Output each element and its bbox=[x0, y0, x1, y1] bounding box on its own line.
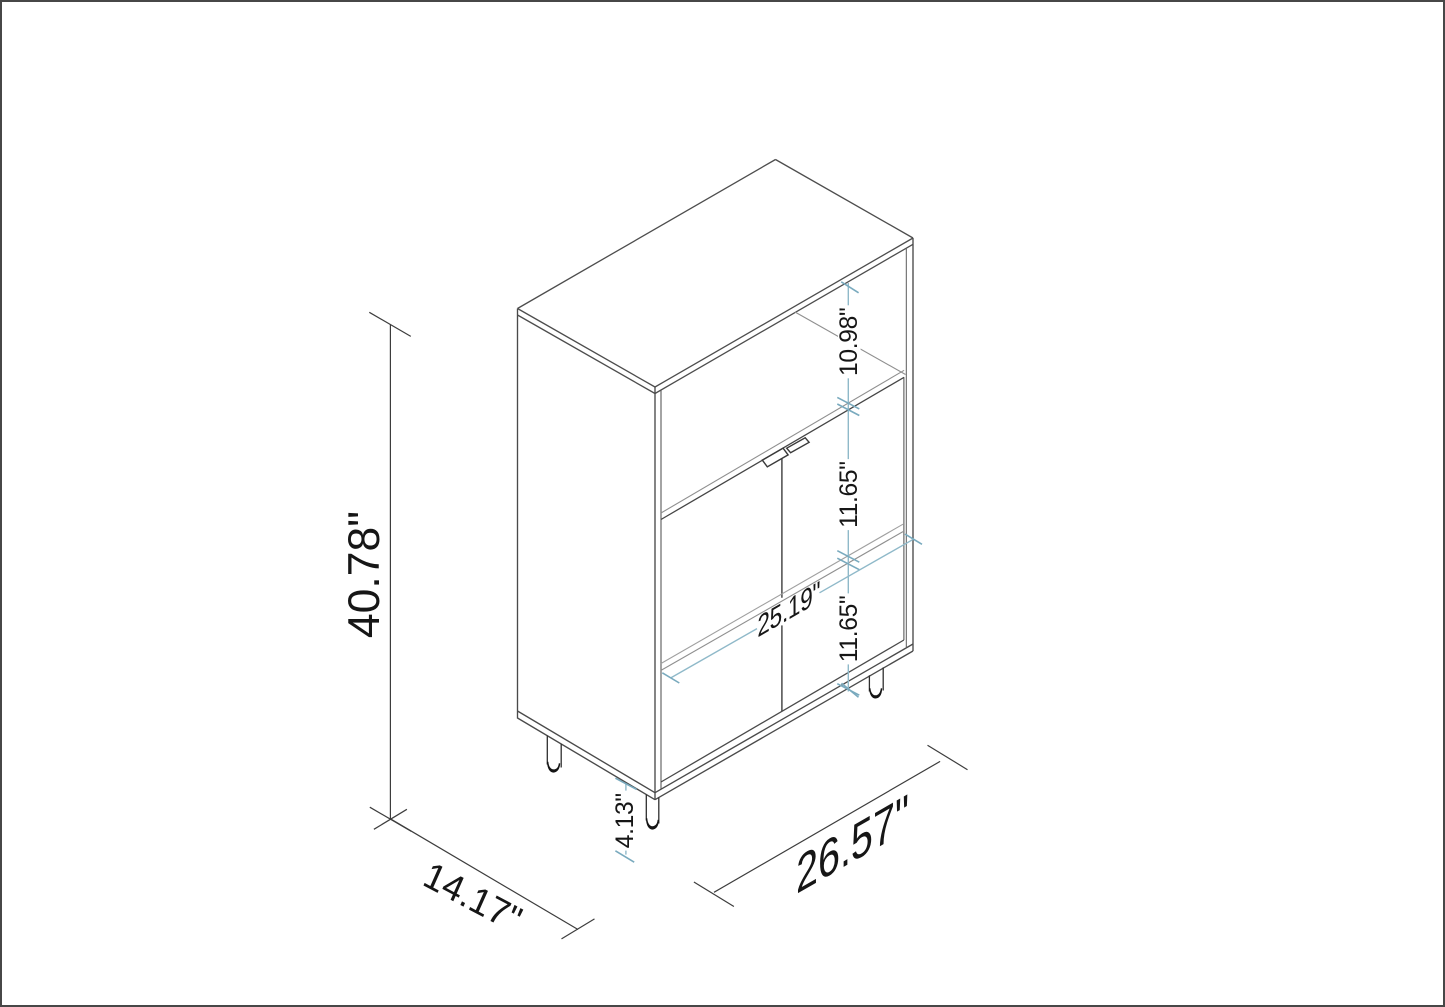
svg-text:40.78": 40.78" bbox=[340, 511, 389, 638]
svg-text:11.65": 11.65" bbox=[836, 596, 863, 663]
svg-text:11.65": 11.65" bbox=[836, 461, 863, 528]
svg-text:10.98": 10.98" bbox=[836, 308, 863, 376]
svg-text:4.13": 4.13" bbox=[612, 793, 639, 848]
